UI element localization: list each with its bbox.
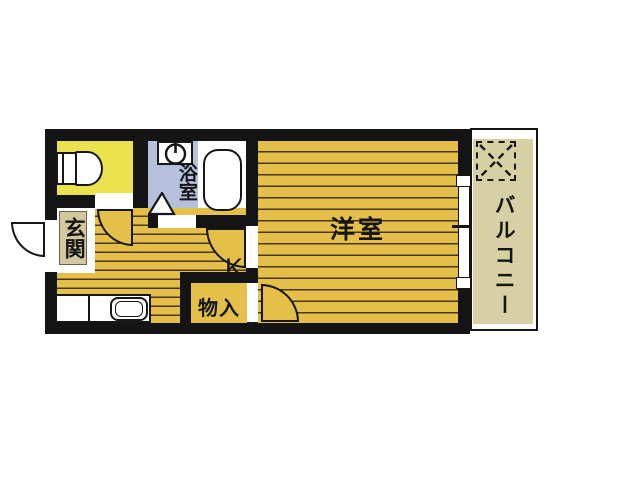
bath-door-triangle-icon [148, 192, 176, 216]
western-room-label: 洋室 [330, 215, 386, 246]
bathtub-icon [203, 149, 242, 211]
entrance-label-box: 玄関 [59, 211, 87, 265]
storage-door-opening [247, 283, 258, 322]
ac-unit-cross [478, 143, 514, 179]
bathroom-label: 浴室 [174, 163, 198, 201]
balcony-label-box: バルコニー [491, 188, 515, 324]
counter-divider-line [88, 295, 90, 322]
floor-plan: 玄関 浴室 K 物入 洋室 [0, 0, 640, 480]
kitchen-sink-inner [115, 301, 143, 317]
kitchen-label-box: K [216, 253, 252, 285]
toilet-door-opening [95, 193, 133, 209]
balcony-label: バルコニー [490, 194, 516, 319]
entrance-door-swing-icon [11, 222, 45, 257]
bathroom-door-opening [158, 215, 196, 228]
toilet-tank-line [62, 153, 64, 184]
entrance-door-opening [45, 220, 57, 272]
storage-label-box: 物入 [190, 297, 248, 321]
ac-unit-hatch-icon [476, 141, 516, 181]
kitchen-label: K [225, 252, 243, 286]
storage-label: 物入 [198, 297, 240, 322]
sliding-window [458, 180, 470, 284]
bathroom-label-box: 浴室 [174, 150, 198, 214]
kitchen-sink-icon [110, 297, 148, 321]
western-room-label-box: 洋室 [316, 217, 400, 245]
toilet-tank-icon [56, 152, 77, 185]
entrance-label: 玄関 [60, 217, 86, 259]
